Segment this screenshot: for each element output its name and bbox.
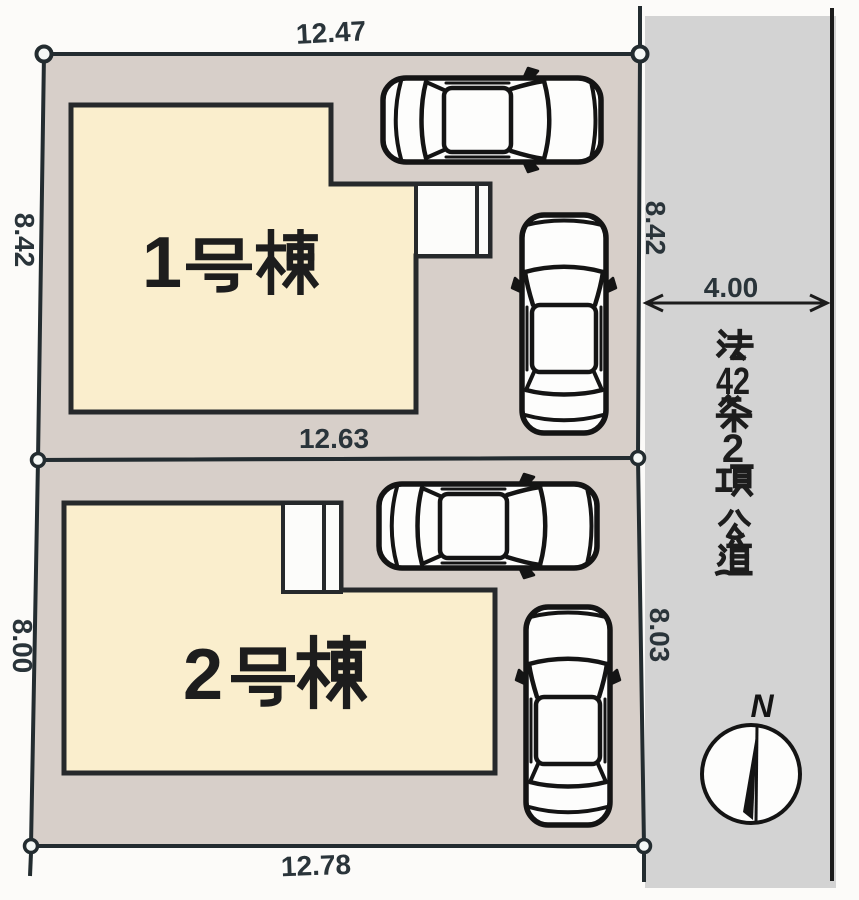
svg-text:8.42: 8.42 [640,201,671,256]
svg-text:8.00: 8.00 [7,619,38,674]
svg-text:8.42: 8.42 [9,213,40,268]
svg-text:1: 1 [142,223,182,303]
svg-text:2: 2 [183,635,223,715]
svg-text:12.78: 12.78 [280,849,351,882]
svg-text:8.03: 8.03 [644,608,675,663]
svg-text:12.47: 12.47 [295,15,367,50]
svg-text:12.63: 12.63 [299,423,369,454]
svg-text:N: N [750,688,774,724]
svg-text:42: 42 [716,361,750,403]
svg-text:4.00: 4.00 [704,272,759,303]
